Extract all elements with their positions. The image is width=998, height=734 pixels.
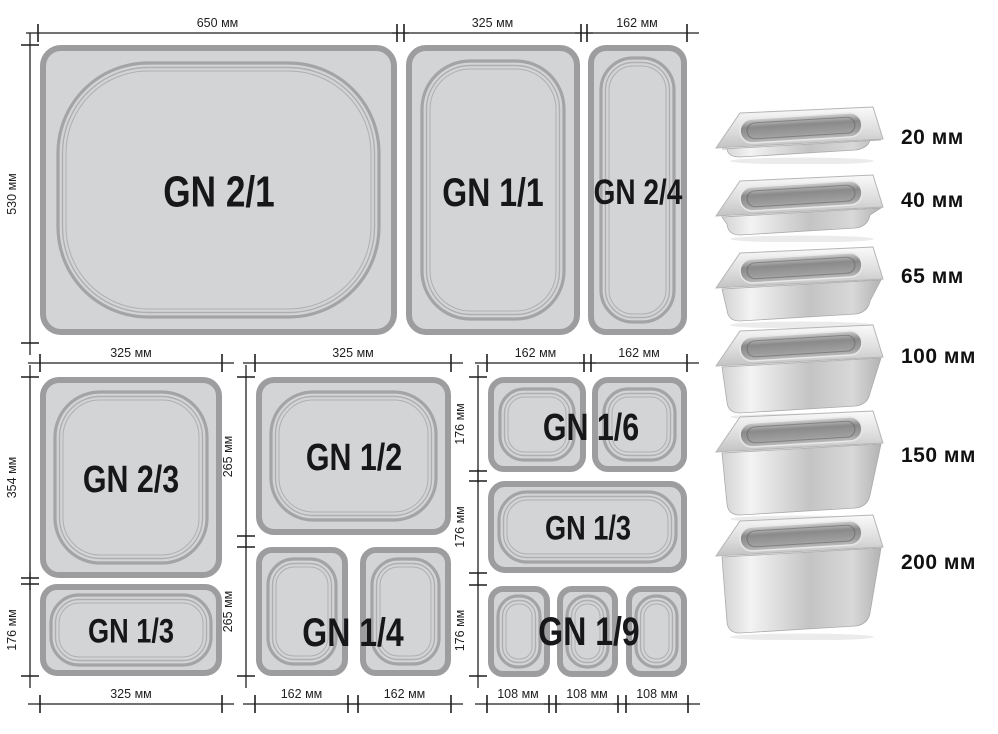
h-dimension: 162 мм (575, 16, 699, 42)
depth-label-150mm: 150 мм (901, 442, 998, 470)
v-dimension: 530 мм (5, 33, 39, 355)
dimension-value: 162 мм (281, 687, 323, 701)
dimension-value: 176 мм (453, 403, 467, 445)
dimension-value: 162 мм (618, 346, 660, 360)
pan-size-label-gn-1-6: GN 1/6 (543, 407, 639, 449)
h-dimension: 325 мм (28, 687, 234, 713)
dimension-value: 162 мм (616, 16, 658, 30)
pan-photo-200mm (710, 512, 888, 645)
h-dimension: 325 мм (28, 346, 234, 372)
pan-size-label: GN 1/3 (545, 509, 631, 548)
dimension-value: 162 мм (515, 346, 557, 360)
h-dimension: 325 мм (243, 346, 463, 372)
v-dimension: 176 мм (453, 573, 487, 688)
pan-gn-1-3-right: GN 1/3 (491, 484, 684, 570)
h-dimension: 650 мм (26, 16, 409, 42)
dimension-value: 650 мм (197, 16, 239, 30)
pan-photo-20mm (710, 104, 888, 169)
dimension-value: 354 мм (5, 457, 19, 499)
v-dimension: 265 мм (221, 365, 255, 548)
h-dimension: 108 мм (544, 687, 630, 713)
pan-size-label: GN 2/4 (594, 172, 683, 212)
pan-gn-1-3-left: GN 1/3 (43, 587, 219, 673)
dimension-value: 325 мм (110, 687, 152, 701)
pan-size-label-gn-1-9: GN 1/9 (538, 608, 639, 653)
h-dimension: 162 мм (243, 687, 360, 713)
pan-photo-65mm (710, 244, 888, 333)
v-dimension: 265 мм (221, 535, 255, 688)
dimension-value: 108 мм (566, 687, 608, 701)
h-dimension: 162 мм (579, 346, 699, 372)
h-dimension: 325 мм (392, 16, 593, 42)
dimension-value: 265 мм (221, 591, 235, 633)
pan-photo-40mm (710, 172, 888, 247)
pan-gn-2-3: GN 2/3 (43, 380, 219, 575)
dimension-value: 265 мм (221, 436, 235, 478)
dimension-value: 176 мм (5, 609, 19, 651)
pan-gn-1-1: GN 1/1 (409, 48, 577, 332)
pan-gn-2-4: GN 2/4 (591, 48, 684, 332)
v-dimension: 176 мм (453, 365, 487, 483)
dimension-value: 162 мм (384, 687, 426, 701)
dimension-value: 108 мм (636, 687, 678, 701)
pan-gn-1-2: GN 1/2 (259, 380, 448, 532)
depth-label-20mm: 20 мм (901, 124, 998, 152)
dimension-value: 325 мм (332, 346, 374, 360)
v-dimension: 354 мм (5, 365, 39, 590)
depth-label-40mm: 40 мм (901, 187, 998, 215)
h-dimension: 162 мм (346, 687, 463, 713)
dimension-value: 325 мм (472, 16, 514, 30)
dimension-value: 530 мм (5, 173, 19, 215)
v-dimension: 176 мм (453, 469, 487, 585)
pan-size-label: GN 1/1 (442, 169, 543, 214)
dimension-value: 176 мм (453, 610, 467, 652)
pan-size-label: GN 1/3 (88, 612, 174, 651)
dimension-value: 325 мм (110, 346, 152, 360)
depth-label-100mm: 100 мм (901, 343, 998, 371)
depth-label-200mm: 200 мм (901, 549, 998, 577)
h-dimension: 162 мм (475, 346, 596, 372)
gastronorm-sizes-infographic: GN 2/1GN 1/1GN 2/4GN 2/3GN 1/3GN 1/2GN 1… (0, 0, 998, 734)
dimension-value: 108 мм (497, 687, 539, 701)
h-dimension: 108 мм (475, 687, 561, 713)
pan-size-label-gn-1-4: GN 1/4 (302, 609, 403, 654)
pan-size-label: GN 1/2 (306, 437, 402, 479)
dimension-value: 176 мм (453, 506, 467, 548)
pan-size-label: GN 2/1 (163, 168, 274, 217)
pan-gn-2-1: GN 2/1 (43, 48, 394, 332)
pan-size-label: GN 2/3 (83, 459, 179, 501)
v-dimension: 176 мм (5, 572, 39, 688)
depth-label-65mm: 65 мм (901, 263, 998, 291)
pan-photo-150mm (710, 408, 888, 527)
h-dimension: 108 мм (614, 687, 700, 713)
